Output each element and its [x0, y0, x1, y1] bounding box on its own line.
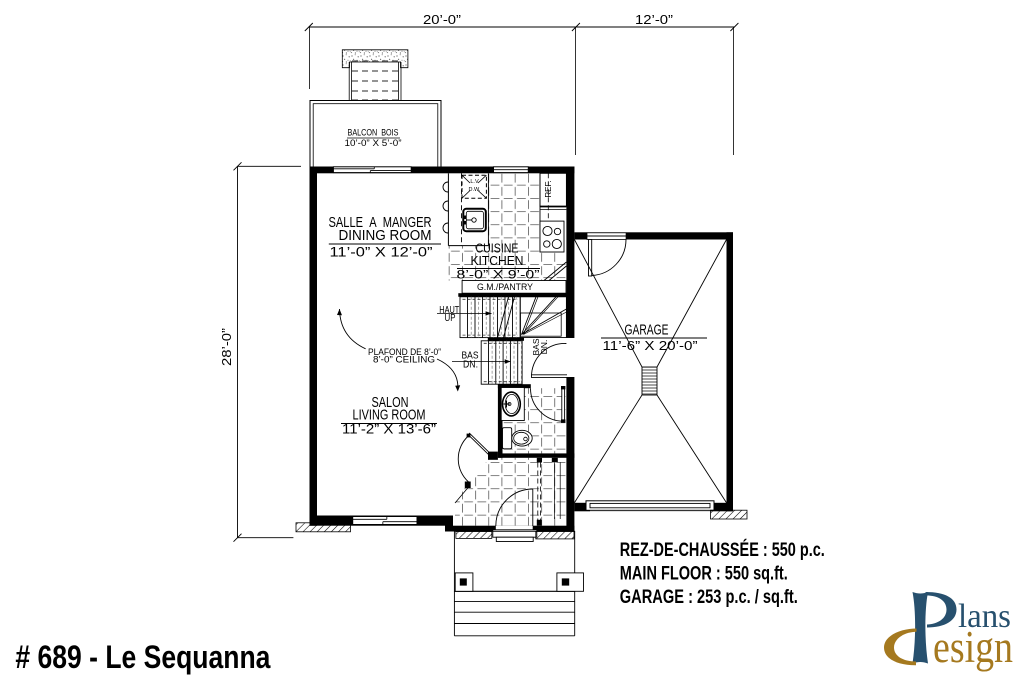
- svg-text:28’-0”: 28’-0”: [220, 328, 234, 366]
- svg-text:BALCON BOIS: BALCON BOIS: [348, 128, 399, 139]
- svg-text:GARAGE: GARAGE: [625, 323, 669, 339]
- svg-text:10’-0” X 5’-0”: 10’-0” X 5’-0”: [345, 138, 402, 149]
- svg-text:8’-0” X 9’-0”: 8’-0” X 9’-0”: [457, 268, 540, 282]
- svg-text:11’-0” X 12’-0”: 11’-0” X 12’-0”: [330, 244, 433, 260]
- svg-text:D.W.: D.W.: [469, 187, 481, 193]
- svg-text:DINING ROOM: DINING ROOM: [339, 227, 432, 244]
- svg-text:DN.: DN.: [539, 340, 549, 355]
- svg-text:UP: UP: [445, 313, 456, 324]
- svg-text:11’-2” X 13’-6”: 11’-2” X 13’-6”: [342, 421, 436, 437]
- svg-text:REF.: REF.: [544, 180, 553, 197]
- svg-text:esign: esign: [933, 622, 1013, 672]
- svg-text:8’-0” CEILING: 8’-0” CEILING: [373, 355, 435, 365]
- svg-text:# 689 - Le Sequanna: # 689 - Le Sequanna: [15, 639, 270, 675]
- svg-text:GARAGE : 253 p.c. / sq.ft.: GARAGE : 253 p.c. / sq.ft.: [620, 586, 798, 608]
- svg-text:20’-0”: 20’-0”: [423, 13, 461, 27]
- svg-text:REZ-DE-CHAUSSÉE : 550 p.c.: REZ-DE-CHAUSSÉE : 550 p.c.: [620, 538, 825, 561]
- svg-text:KITCHEN: KITCHEN: [471, 254, 524, 268]
- svg-text:11’-6” X 20’-0”: 11’-6” X 20’-0”: [603, 338, 698, 353]
- svg-text:MAIN FLOOR : 550 sq.ft.: MAIN FLOOR : 550 sq.ft.: [620, 563, 788, 585]
- svg-text:12’-0”: 12’-0”: [635, 13, 673, 27]
- svg-text:L.V: L.V: [470, 179, 479, 185]
- svg-text:G.M./PANTRY: G.M./PANTRY: [477, 282, 534, 293]
